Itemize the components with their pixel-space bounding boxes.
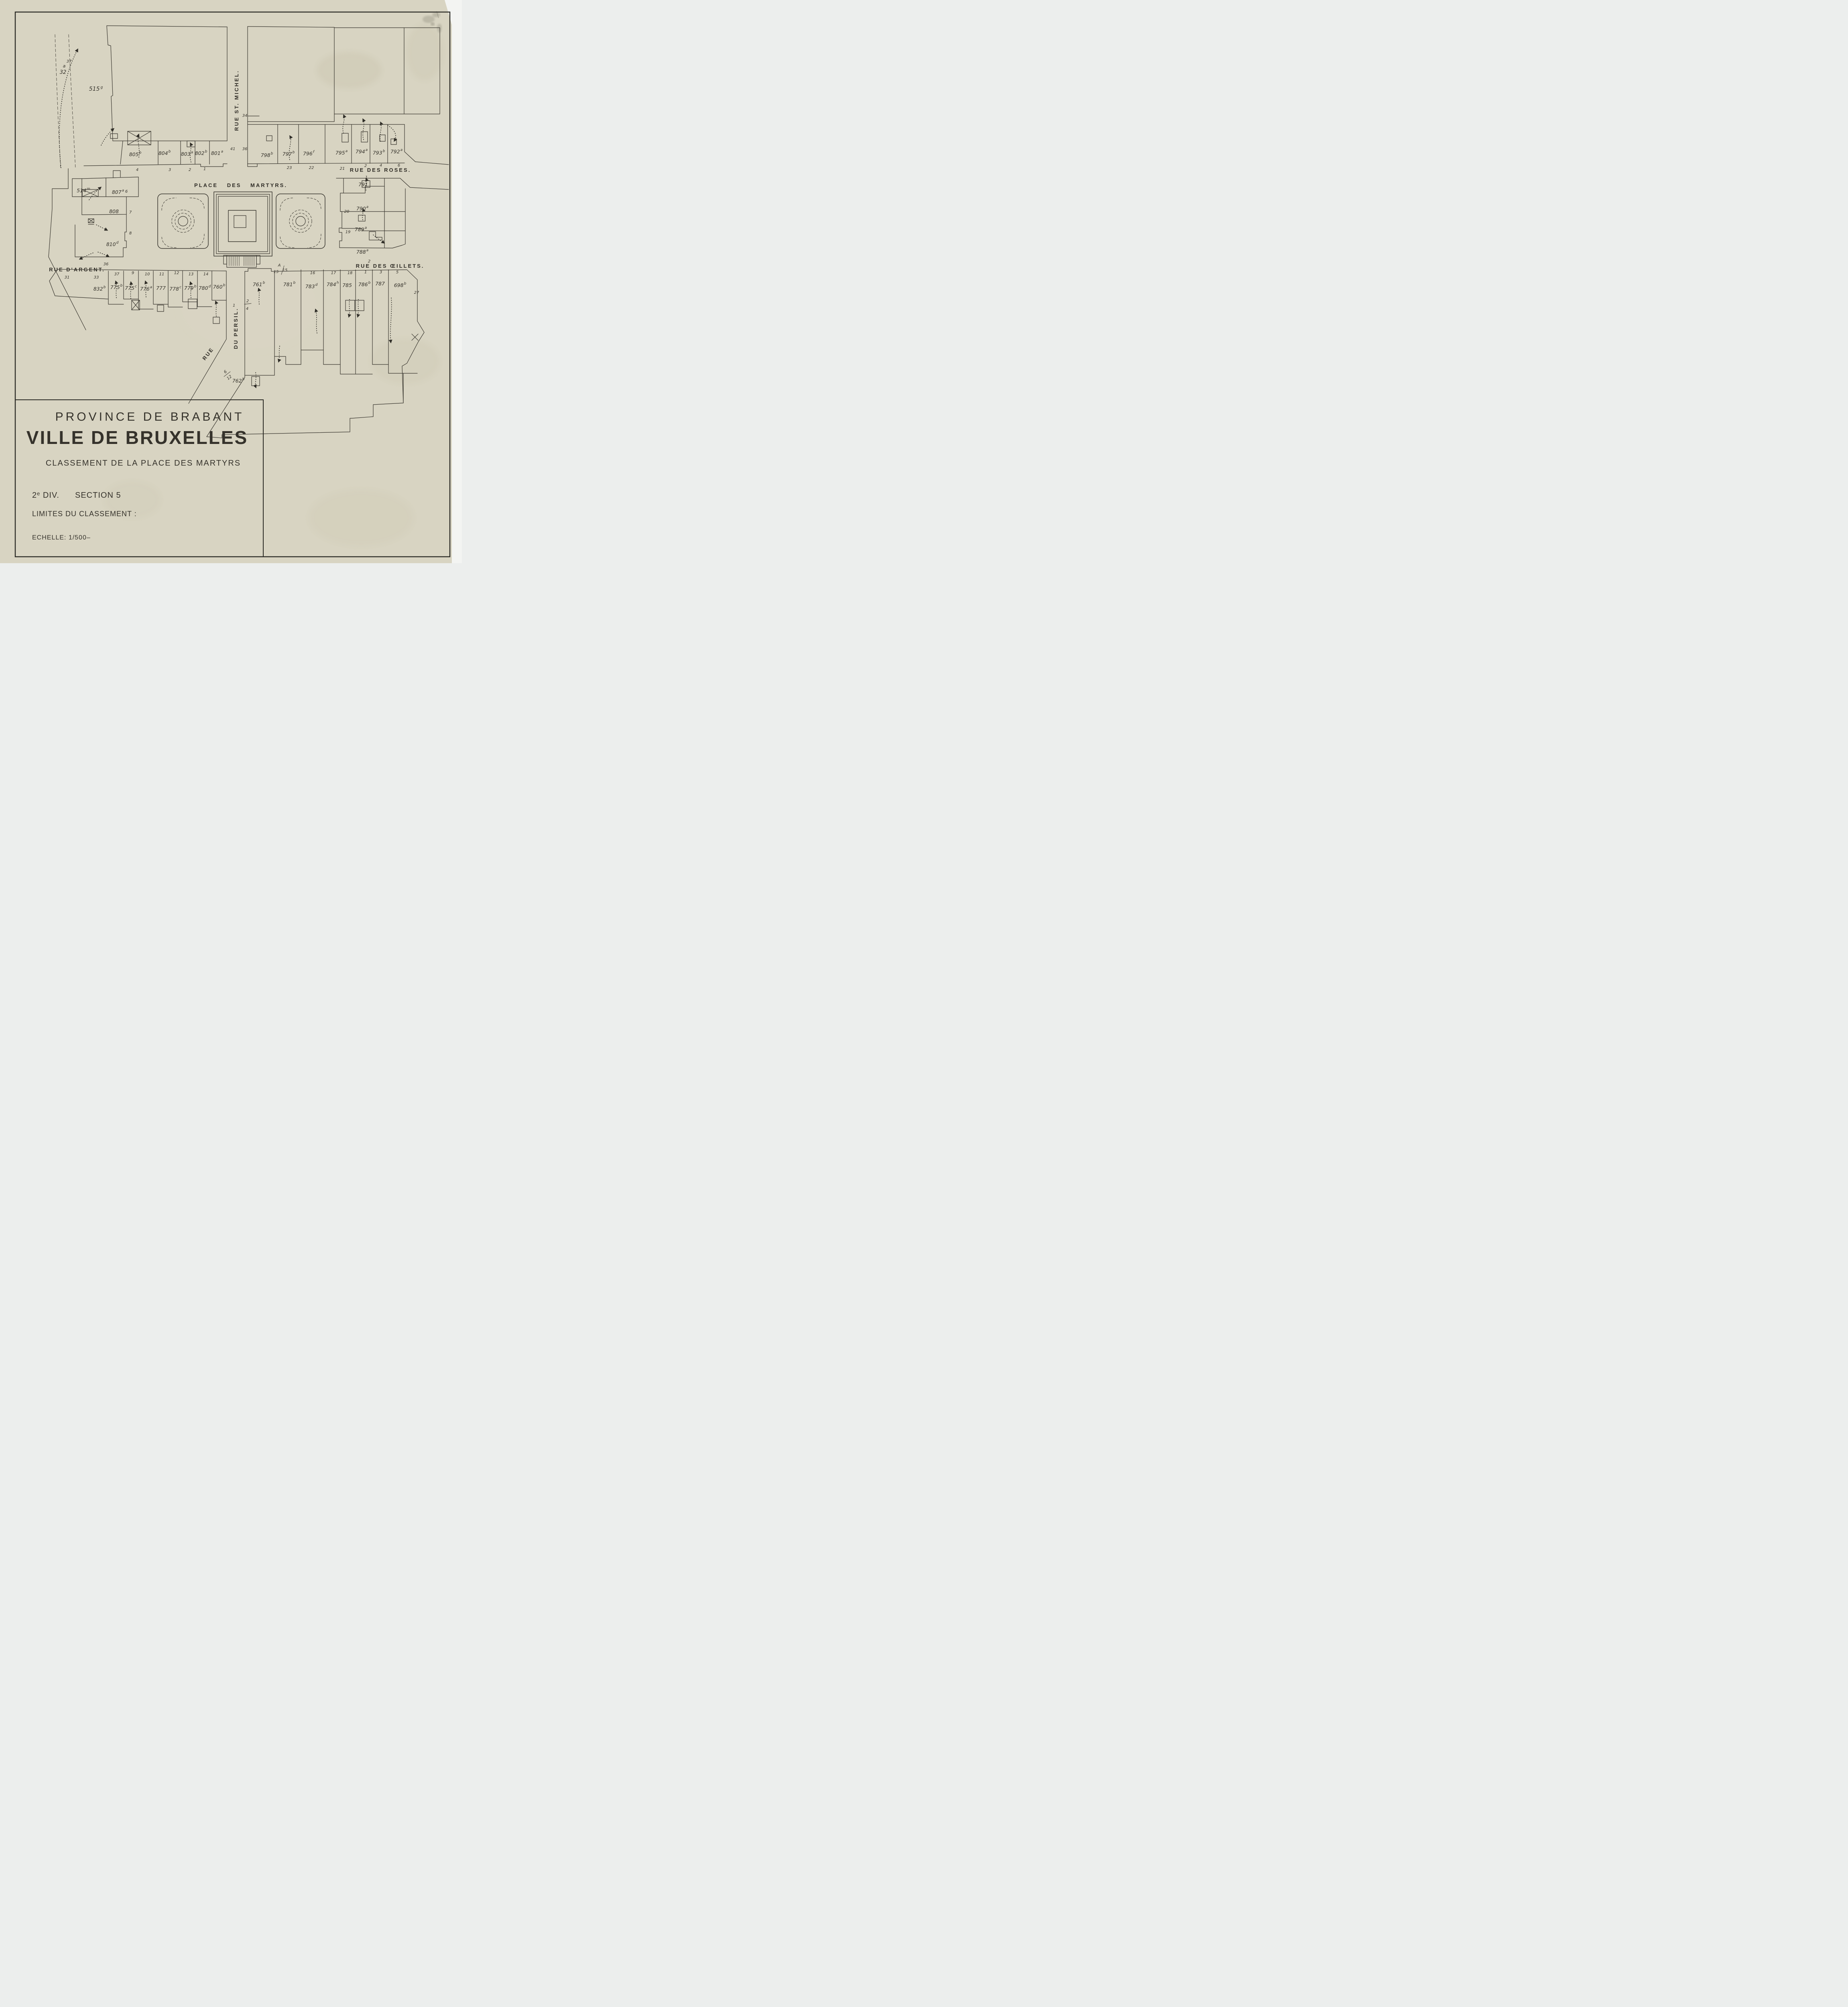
house-number-oeillets-5: 5 xyxy=(396,270,398,275)
parcel-label-785: 785 xyxy=(342,282,352,288)
parcel-label-515g: 515g xyxy=(89,85,103,92)
house-number-1: 1 xyxy=(203,167,206,171)
parcel-label-789a: 789a xyxy=(355,226,367,232)
parcel-label-793b: 793b xyxy=(373,149,385,156)
svg-text:4: 4 xyxy=(246,307,248,311)
parcel-label-794a: 794a xyxy=(356,148,368,155)
house-number-41: 41 xyxy=(230,147,236,151)
parcel-label-777: 777 xyxy=(156,285,166,291)
paper-stains xyxy=(104,24,443,546)
house-number-place-9: 9 xyxy=(132,271,134,275)
house-number-place-13: 13 xyxy=(189,272,194,277)
house-number-roses-1: 1 xyxy=(365,175,368,180)
street-label-rue-des-oeillets: RUE DES ŒILLETS. xyxy=(356,263,425,269)
house-number-oeillets-1: 1 xyxy=(364,270,367,275)
house-number-27: 27 xyxy=(414,291,419,295)
parcel-label-792a: 792a xyxy=(390,148,403,155)
annotation-37: 37 xyxy=(67,59,72,64)
house-number-argent-37: 37 xyxy=(114,272,120,277)
martyrs-monument xyxy=(214,192,272,267)
parcel-label-788a: 788a xyxy=(356,248,368,255)
parcel-label-797b: 797b xyxy=(283,151,295,157)
house-number-oeillets-3: 3 xyxy=(380,270,382,275)
parcel-label-808: 808 xyxy=(109,208,119,214)
parcel-label-786b: 786b xyxy=(358,281,371,287)
title-province: PROVINCE DE BRABANT xyxy=(55,410,244,423)
street-label-du-persil: DU PERSIL. xyxy=(233,308,239,349)
parcel-label-796f: 796f xyxy=(303,150,315,157)
house-number-oeillets-16: 16 xyxy=(310,271,315,275)
parcel-label-810d: 810d xyxy=(106,241,119,247)
house-number-19: 19 xyxy=(346,230,351,234)
parcel-label-787: 787 xyxy=(375,281,385,287)
house-number-persil-1: 1 xyxy=(233,303,235,308)
house-number-argent-33: 33 xyxy=(94,275,99,280)
house-number-roses-6: 6 xyxy=(398,163,400,168)
house-number-place-7: 7 xyxy=(129,210,132,215)
title-division-section: 2e DIV.SECTION 5 xyxy=(32,491,121,500)
house-number-23: 23 xyxy=(287,166,292,170)
house-number-place-8: 8 xyxy=(129,231,132,236)
title-classement: CLASSEMENT DE LA PLACE DES MARTYRS xyxy=(46,459,241,468)
street-label-rue-d-argent: RUE D'ARGENT. xyxy=(49,267,105,273)
parcel-label-802b: 802b xyxy=(195,150,207,156)
parcel-label-795a: 795a xyxy=(335,149,348,156)
parcel-label-832b: 832b xyxy=(94,285,106,292)
parcel-label-762h: 762h xyxy=(232,377,245,384)
title-limites: LIMITES DU CLASSEMENT : xyxy=(32,510,137,518)
place-des-martyrs-gardens xyxy=(158,194,325,248)
plan-drawing: PLACE DES MARTYRS. RUE ST. MICHEL. RUE D… xyxy=(0,0,462,563)
street-label-rue-persil: RUE xyxy=(201,346,215,361)
house-number-argent-36: 36 xyxy=(104,262,109,267)
scan-backing-strip xyxy=(445,0,462,563)
house-number-15-left: 15 xyxy=(274,270,279,274)
house-number-20: 20 xyxy=(344,210,350,214)
street-label-rue-des-roses: RUE DES ROSES. xyxy=(350,167,411,173)
house-number-place-11: 11 xyxy=(159,272,165,277)
house-number-place-6: 6 xyxy=(125,189,128,194)
scanned-cadastral-plan: PLACE DES MARTYRS. RUE ST. MICHEL. RUE D… xyxy=(0,0,462,563)
house-number-34: 34 xyxy=(242,114,248,118)
house-number-21: 21 xyxy=(340,167,345,171)
house-number-4: 4 xyxy=(136,168,138,172)
annotation-a: a xyxy=(63,63,66,69)
house-number-22: 22 xyxy=(309,166,314,170)
annotation-32: 32 xyxy=(60,69,67,75)
house-number-place-14: 14 xyxy=(203,272,209,277)
house-number-15A: A xyxy=(278,263,281,268)
parcel-label-791: 791 xyxy=(358,181,368,187)
house-number-36: 36 xyxy=(242,147,248,151)
parcel-label-804b: 804b xyxy=(159,150,171,156)
parcel-label-798b: 798b xyxy=(261,152,273,158)
house-number-oeillets-17: 17 xyxy=(331,271,336,275)
title-block: PROVINCE DE BRABANT VILLE DE BRUXELLES C… xyxy=(15,400,263,557)
house-number-roses-2: 2 xyxy=(364,164,367,168)
parcel-label-778c: 778c xyxy=(169,285,181,292)
parcel-label-784h: 784h xyxy=(327,281,339,287)
svg-text:6: 6 xyxy=(223,370,228,375)
parcel-label-514m: 514m xyxy=(77,187,90,193)
parcel-label-803a: 803a xyxy=(181,151,193,157)
title-echelle: ECHELLE: 1/500– xyxy=(32,534,91,541)
parcel-label-698b: 698b xyxy=(394,282,407,288)
parcel-label-775b: 775b xyxy=(110,284,123,290)
house-number-oeillets-2: 2 xyxy=(368,259,370,264)
house-number-roses-4: 4 xyxy=(380,163,382,168)
street-label-place-des-martyrs: PLACE DES MARTYRS. xyxy=(194,182,287,188)
svg-text:2: 2 xyxy=(246,299,249,303)
house-number-place-10: 10 xyxy=(145,272,150,277)
svg-text:12: 12 xyxy=(226,375,233,381)
house-number-3: 3 xyxy=(169,168,171,172)
house-number-place-12: 12 xyxy=(174,271,179,275)
house-number-2: 2 xyxy=(189,168,191,172)
parcel-label-801a: 801a xyxy=(211,150,223,156)
title-city: VILLE DE BRUXELLES xyxy=(26,427,248,448)
street-label-rue-st-michel: RUE ST. MICHEL. xyxy=(234,70,240,131)
parcel-label-776a: 776a xyxy=(140,285,152,292)
parcel-label-775c: 775c xyxy=(125,285,137,291)
parcel-label-807a: 807a xyxy=(112,189,124,195)
house-number-oeillets-18: 18 xyxy=(348,271,353,275)
labels: PLACE DES MARTYRS. RUE ST. MICHEL. RUE D… xyxy=(49,59,424,384)
parcel-label-790a: 790a xyxy=(356,205,368,212)
parcel-label-805b: 805b xyxy=(129,151,142,157)
house-number-argent-31: 31 xyxy=(65,275,70,280)
